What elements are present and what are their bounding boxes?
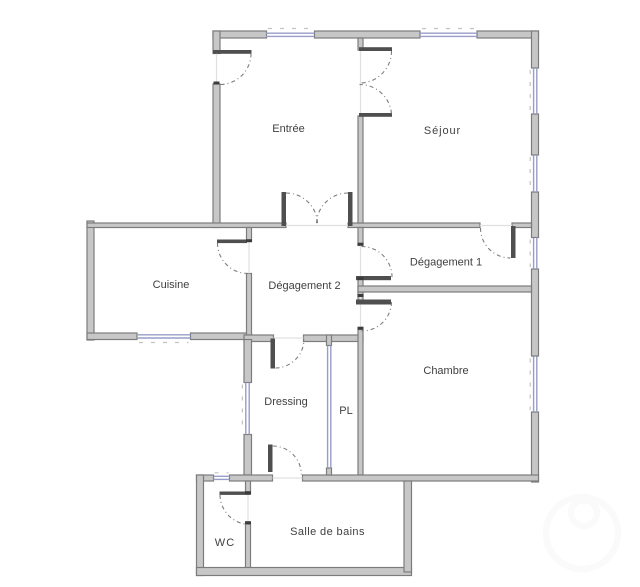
svg-text:PL: PL xyxy=(339,405,352,417)
svg-text:Dégagement 2: Dégagement 2 xyxy=(268,280,340,292)
svg-text:Cuisine: Cuisine xyxy=(153,279,190,291)
svg-text:WC: WC xyxy=(215,537,236,549)
svg-text:Dressing: Dressing xyxy=(264,396,307,408)
svg-text:Chambre: Chambre xyxy=(423,365,468,377)
svg-text:Entrée: Entrée xyxy=(272,123,304,135)
svg-text:Séjour: Séjour xyxy=(424,125,461,137)
svg-text:Salle de bains: Salle de bains xyxy=(290,526,365,538)
svg-text:Dégagement 1: Dégagement 1 xyxy=(410,257,482,269)
